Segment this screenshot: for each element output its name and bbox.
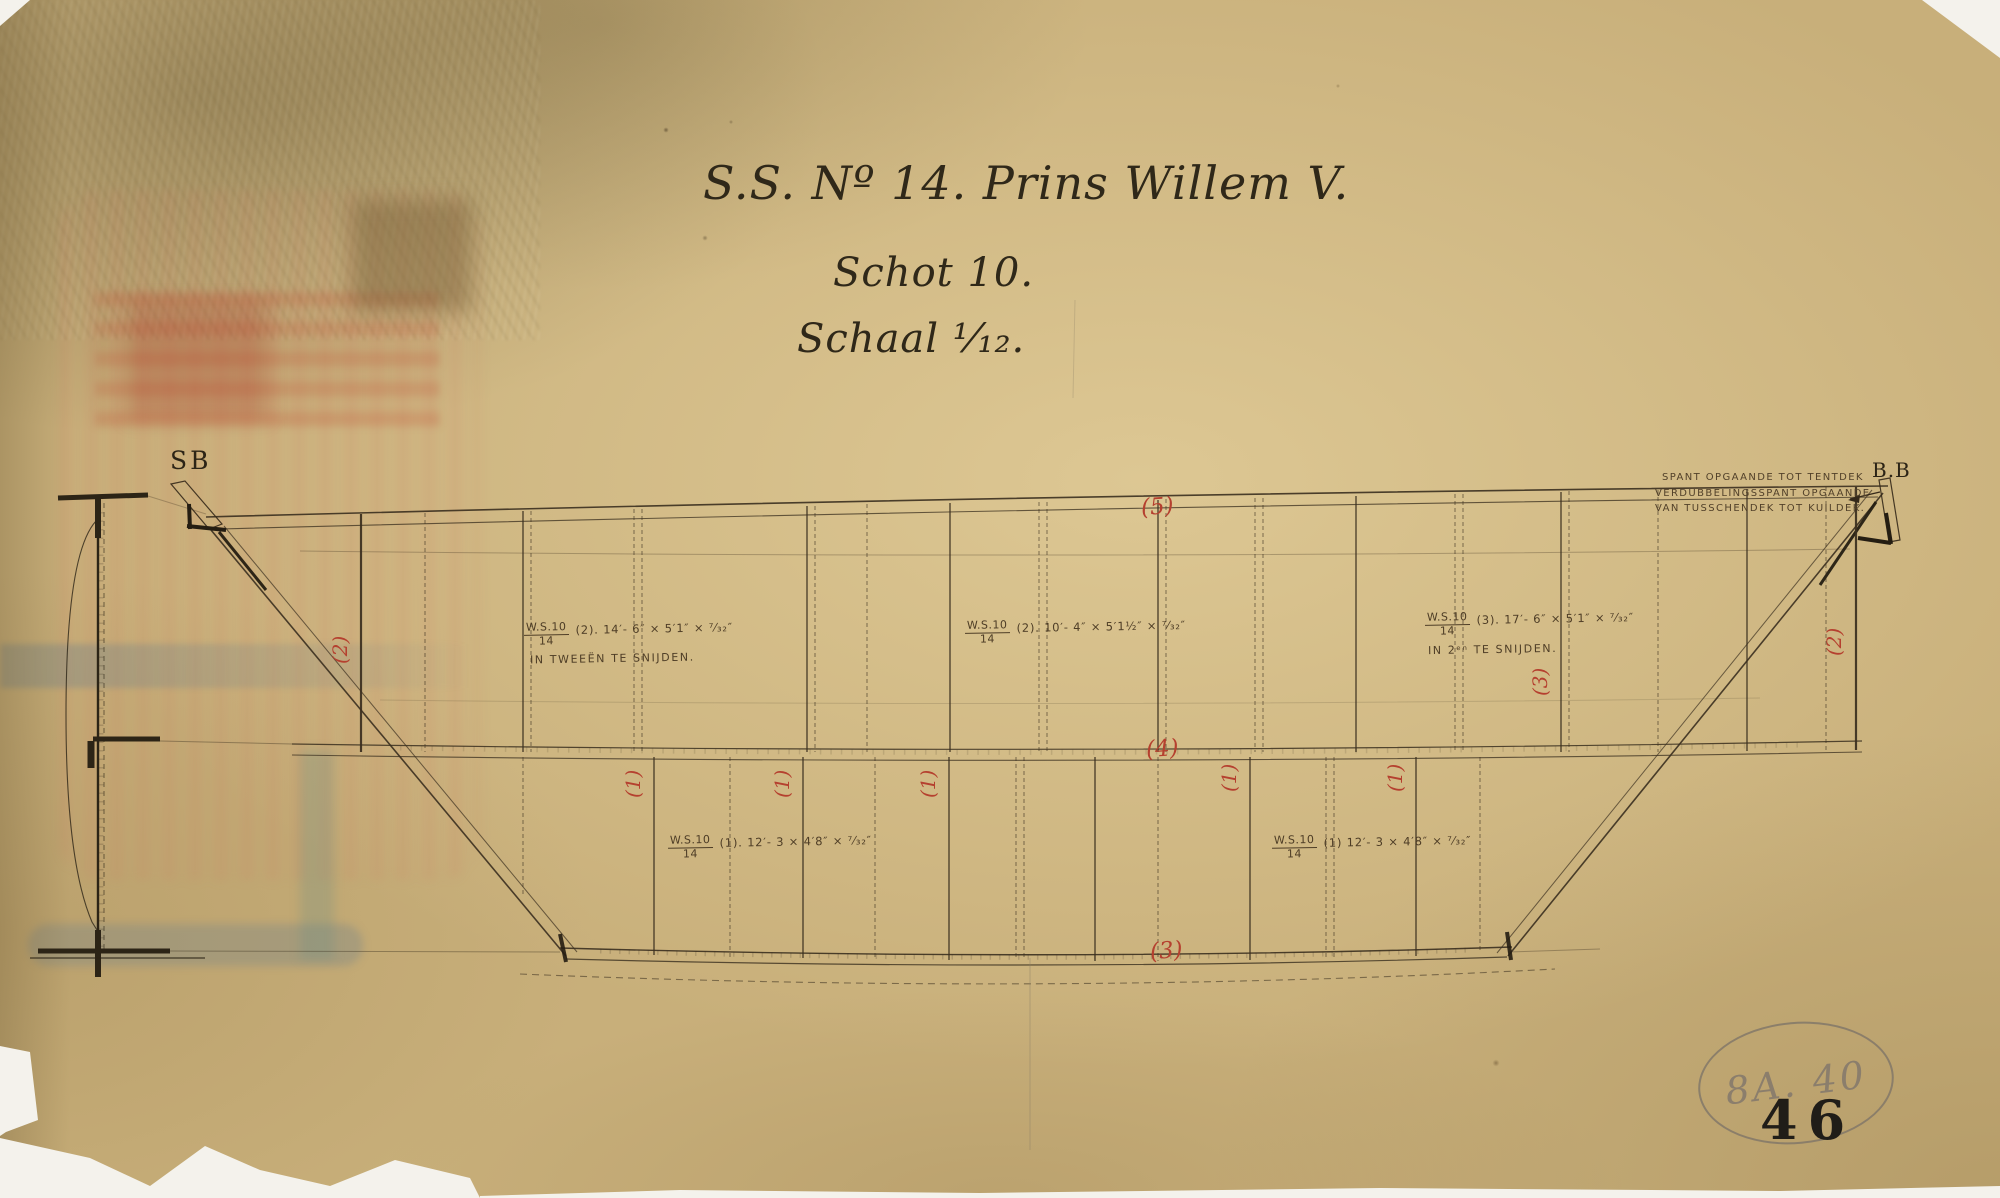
strake-number-upper-left: (2) — [328, 636, 352, 664]
strake-number-lower-5: (1) — [1383, 764, 1407, 792]
plate-annotation-upper-middle: W.S.10 14 (2). 10′- 4″ × 5′1½″ × ⁷⁄₃₂″ — [965, 616, 1186, 646]
strake-number-lower-4: (1) — [1217, 764, 1241, 792]
plate-annotation-upper-right: W.S.10 14 (3). 17′- 6″ × 5′1″ × ⁷⁄₃₂″ — [1425, 608, 1634, 638]
strake-number-lower-1: (1) — [621, 770, 645, 798]
plate-dims: (1) 12′- 3 × 4′8″ × ⁷⁄₃₂″ — [1323, 831, 1471, 850]
pencil-guide-lines — [1030, 300, 1075, 1150]
plate-ref: W.S.10 14 — [524, 621, 569, 648]
strake-number-middle: (4) — [1145, 735, 1179, 763]
title-line-2: Schot 10. — [833, 250, 1034, 296]
strake-number-upper-right: (2) — [1822, 628, 1846, 656]
title-line-1: S.S. Nº 14. Prins Willem V. — [703, 156, 1349, 210]
plate-dims: (1). 12′- 3 × 4′8″ × ⁷⁄₃₂″ — [719, 831, 872, 850]
plate-note-upper-right: IN 2ᵉⁿ TE SNIJDEN. — [1428, 642, 1557, 657]
plate-dims: (3). 17′- 6″ × 5′1″ × ⁷⁄₃₂″ — [1476, 608, 1634, 627]
hull-outline — [148, 486, 1888, 984]
plate-ref: W.S.10 14 — [668, 834, 713, 861]
plate-ref: W.S.10 14 — [1425, 611, 1470, 638]
plate-annotation-lower-left: W.S.10 14 (1). 12′- 3 × 4′8″ × ⁷⁄₃₂″ — [668, 831, 872, 861]
plate-ref: W.S.10 14 — [965, 619, 1010, 646]
sheet-number-stamp: 46 — [1760, 1088, 1855, 1152]
plate-annotation-upper-left: W.S.10 14 (2). 14′- 6″ × 5′1″ × ⁷⁄₃₂″ — [524, 618, 733, 648]
label-starboard-sb: SB — [170, 446, 212, 475]
frame-note-line-1: SPANT OPGAANDE TOT TENTDEK — [1662, 472, 1864, 483]
title-line-3: Schaal ¹⁄₁₂. — [797, 316, 1025, 362]
plate-ref: W.S.10 14 — [1272, 834, 1317, 861]
corner-frame-brackets — [171, 478, 1900, 962]
drawing-sheet: S.S. Nº 14. Prins Willem V. Schot 10. Sc… — [0, 0, 2000, 1198]
plate-dims: (2). 14′- 6″ × 5′1″ × ⁷⁄₃₂″ — [575, 618, 733, 637]
frame-note-line-3: VAN TUSSCHENDEK TOT KUILDEK. — [1655, 503, 1865, 514]
plate-annotation-lower-right: W.S.10 14 (1) 12′- 3 × 4′8″ × ⁷⁄₃₂″ — [1272, 831, 1472, 861]
strake-number-lower-2: (1) — [770, 770, 794, 798]
bulkhead-edge-view — [30, 495, 205, 977]
plate-dims: (2). 10′- 4″ × 5′1½″ × ⁷⁄₃₂″ — [1016, 616, 1186, 635]
label-portside-bb: B.B — [1872, 458, 1911, 482]
strake-number-upper-right-inner: (3) — [1528, 668, 1552, 696]
strake-number-bottom: (3) — [1149, 937, 1183, 965]
frame-note-line-2: VERDUBBELINGSSPANT OPGAANDE — [1655, 488, 1871, 499]
strake-number-top: (5) — [1140, 493, 1174, 521]
strake-number-lower-3: (1) — [916, 770, 940, 798]
